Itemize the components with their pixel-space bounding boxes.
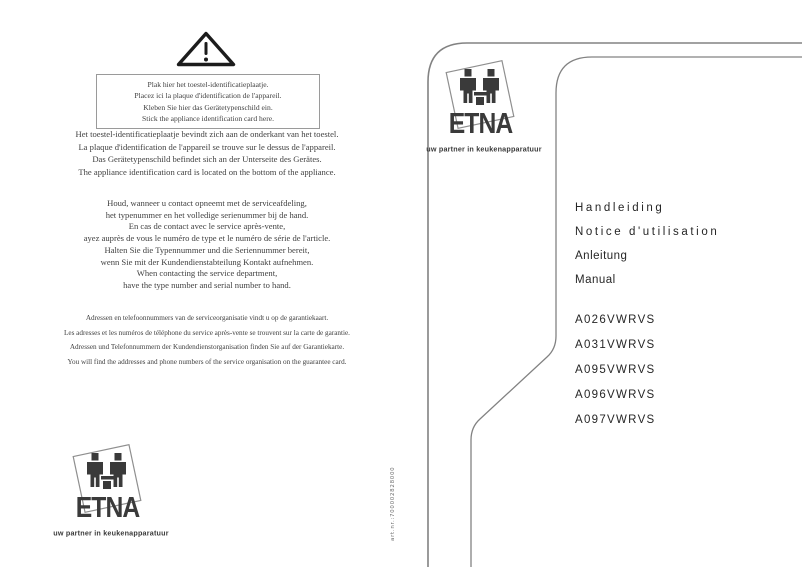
logo-tagline: uw partner in keukenapparatuur bbox=[426, 145, 541, 154]
model-number-list: A026VWRVS A031VWRVS A095VWRVS A096VWRVS … bbox=[575, 308, 656, 433]
logo-brand-text: ETNA bbox=[449, 107, 513, 139]
two-people-icon bbox=[460, 69, 499, 105]
etna-logo-cover: ETNA uw partner in keukenapparatuur bbox=[422, 56, 558, 156]
model-number: A026VWRVS bbox=[575, 308, 656, 333]
model-number: A097VWRVS bbox=[575, 408, 656, 433]
cover-title-list: Handleiding Notice d'utilisation Anleitu… bbox=[575, 196, 719, 292]
model-number: A096VWRVS bbox=[575, 383, 656, 408]
cover-title-nl: Handleiding bbox=[575, 196, 719, 220]
cover-title-de: Anleitung bbox=[575, 244, 719, 268]
manual-cover-page: Plak hier het toestel-identificatieplaat… bbox=[0, 0, 802, 567]
cover-title-fr: Notice d'utilisation bbox=[575, 220, 719, 244]
model-number: A095VWRVS bbox=[575, 358, 656, 383]
cover-title-en: Manual bbox=[575, 268, 719, 292]
model-number: A031VWRVS bbox=[575, 333, 656, 358]
